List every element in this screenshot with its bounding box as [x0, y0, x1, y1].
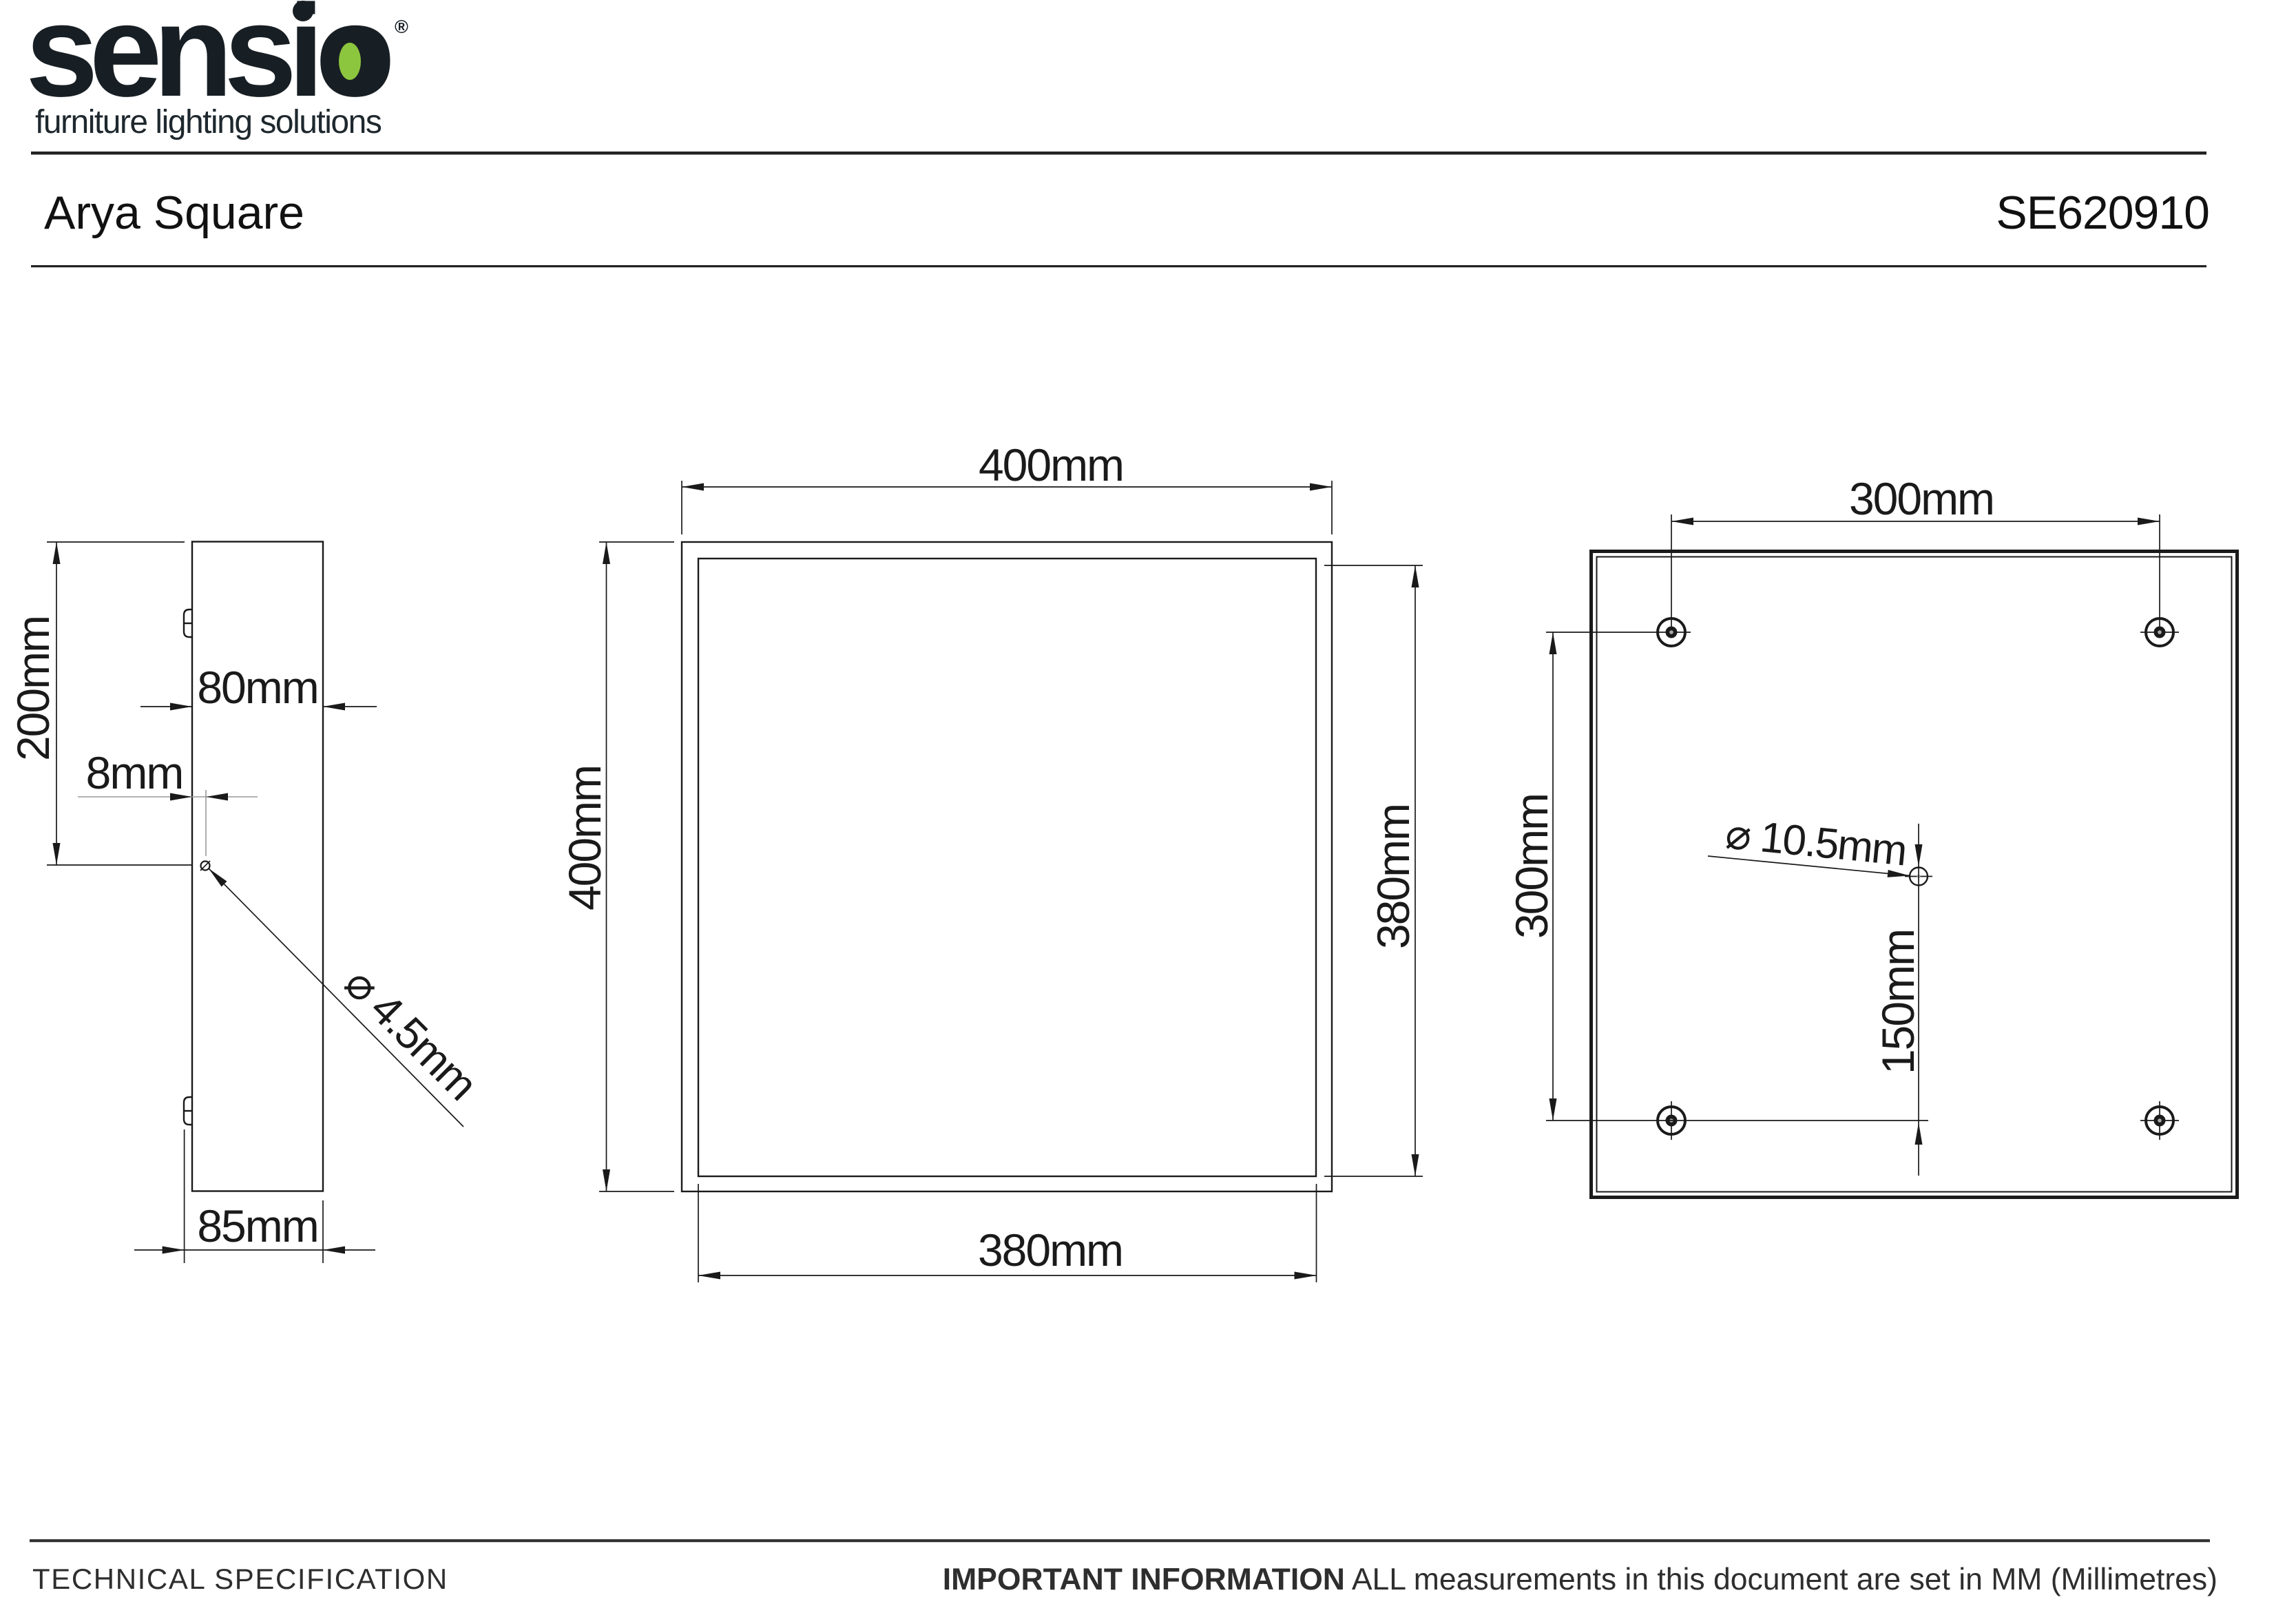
svg-text:85mm: 85mm — [197, 1200, 317, 1251]
svg-text:380mm: 380mm — [978, 1225, 1123, 1275]
svg-text:IMPORTANT INFORMATION ALL meas: IMPORTANT INFORMATION ALL measurements i… — [943, 1563, 2217, 1596]
svg-text:400mm: 400mm — [979, 439, 1123, 490]
svg-text:200mm: 200mm — [8, 616, 59, 761]
svg-text:furniture lighting solutions: furniture lighting solutions — [35, 104, 382, 140]
svg-text:⌀ 10.5mm: ⌀ 10.5mm — [1724, 810, 1908, 875]
svg-text:SE620910: SE620910 — [1996, 187, 2209, 239]
svg-text:400mm: 400mm — [559, 766, 610, 910]
svg-text:150mm: 150mm — [1872, 930, 1923, 1074]
svg-text:8mm: 8mm — [86, 747, 183, 798]
svg-text:⌀ 4.5mm: ⌀ 4.5mm — [335, 958, 486, 1109]
svg-text:TECHNICAL SPECIFICATION: TECHNICAL SPECIFICATION — [32, 1563, 448, 1595]
svg-text:Arya Square: Arya Square — [44, 187, 304, 239]
svg-text:300mm: 300mm — [1849, 473, 1994, 524]
svg-text:300mm: 300mm — [1506, 794, 1557, 939]
svg-text:380mm: 380mm — [1368, 804, 1419, 949]
svg-text:®: ® — [395, 17, 408, 37]
svg-text:80mm: 80mm — [197, 662, 317, 713]
